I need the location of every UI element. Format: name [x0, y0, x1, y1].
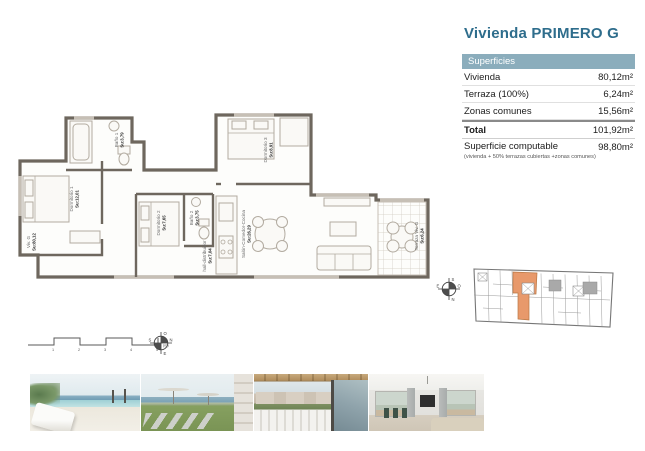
svg-text:Su:80,12: Su:80,12 — [32, 233, 37, 251]
surfaces-table-header: Superficies — [462, 54, 635, 69]
table-row-computable: Superficie computable (vivienda + 50% te… — [462, 139, 635, 162]
svg-text:N: N — [170, 338, 173, 343]
svg-text:Salón-Comedor-Cocina: Salón-Comedor-Cocina — [241, 210, 246, 258]
svg-text:Dormitorio 1: Dormitorio 1 — [69, 186, 74, 211]
svg-text:N: N — [452, 297, 455, 302]
curtain-shape — [439, 388, 447, 418]
key-plan-drawing — [463, 242, 638, 334]
svg-text:2: 2 — [78, 348, 80, 352]
total-label: Total — [464, 125, 486, 136]
loungers-shape — [143, 413, 216, 429]
photo-pool-sea-view — [30, 374, 140, 431]
row-label: Vivienda — [464, 72, 500, 83]
table-row-vivienda: Vivienda 80,12m² — [462, 69, 635, 86]
svg-text:Su:26,29: Su:26,29 — [247, 225, 252, 243]
building-outline — [474, 269, 613, 327]
svg-text:Dormitorio 3: Dormitorio 3 — [263, 137, 268, 162]
row-label: Terraza (100%) — [464, 89, 529, 100]
svg-text:O: O — [458, 284, 462, 289]
building-shape — [234, 374, 253, 431]
wardrobe-dorm1 — [70, 231, 100, 243]
computable-label-block: Superficie computable (vivienda + 50% te… — [464, 142, 596, 160]
svg-text:Viv. G: Viv. G — [26, 236, 31, 249]
svg-text:Baño 2: Baño 2 — [189, 210, 194, 225]
page-title: Vivienda PRIMERO G — [464, 25, 619, 42]
cityscape-shape — [256, 392, 331, 403]
photo-balcony-view — [254, 374, 368, 431]
sink-bath2 — [192, 198, 201, 207]
railing-shape — [254, 410, 332, 431]
svg-text:4: 4 — [130, 348, 132, 352]
wardrobe-dorm3 — [280, 118, 308, 146]
svg-text:Su:8,91: Su:8,91 — [269, 142, 274, 158]
lounger-shape — [31, 402, 75, 431]
svg-text:Su:6,24: Su:6,24 — [420, 228, 425, 244]
sink-bath1 — [109, 121, 119, 131]
svg-text:S: S — [452, 277, 455, 282]
room-label-bano2: Baño 2 Su:3,75 — [189, 210, 200, 226]
umbrella-stem-shape — [208, 396, 209, 405]
brochure-page: Vivienda PRIMERO G Superficies Vivienda … — [0, 0, 645, 451]
svg-text:hall-distribuidor: hall-distribuidor — [202, 240, 207, 272]
floor-plan-drawing: Dormitorio 1 Su:12,01 Baño 1 Su:3,79 Dor… — [14, 106, 436, 284]
row-value: 80,12m² — [598, 72, 633, 83]
kitchen-sink — [219, 203, 233, 221]
svg-text:S: S — [149, 338, 152, 343]
sofa-shape — [431, 418, 484, 431]
photo-interior-living-room — [369, 374, 484, 431]
tv-unit — [324, 198, 370, 206]
computable-note: (vivienda + 50% terrazas cubiertas +zona… — [464, 154, 596, 160]
dining-chairs-shape — [384, 408, 410, 418]
svg-text:Dormitorio 2: Dormitorio 2 — [156, 210, 161, 235]
key-plan — [463, 242, 638, 334]
svg-text:Su:7,65: Su:7,65 — [162, 215, 167, 231]
computable-label: Superficie computable — [464, 141, 558, 152]
tv-shape — [420, 395, 435, 407]
compass-rose-icon: O E S N — [148, 330, 174, 356]
svg-text:O: O — [164, 331, 168, 336]
sofa — [317, 246, 371, 270]
pendant-lamp-shape — [427, 376, 428, 384]
table-row-terraza: Terraza (100%) 6,24m² — [462, 86, 635, 103]
lamp-post-shape — [124, 389, 126, 403]
svg-text:Su:3,75: Su:3,75 — [195, 210, 200, 226]
floor-plan: Dormitorio 1 Su:12,01 Baño 1 Su:3,79 Dor… — [14, 106, 436, 284]
table-row-zonas-comunes: Zonas comunes 15,56m² — [462, 103, 635, 120]
svg-text:E: E — [164, 351, 167, 356]
plants-shape — [30, 383, 60, 406]
svg-text:E: E — [437, 284, 440, 289]
svg-text:Terraza Viv. G: Terraza Viv. G — [414, 221, 419, 250]
svg-text:Su:3,79: Su:3,79 — [120, 132, 125, 148]
svg-text:Su:12,01: Su:12,01 — [75, 190, 80, 208]
glass-door-shape — [331, 380, 368, 431]
svg-text:Su:7,04: Su:7,04 — [208, 248, 213, 264]
computable-value: 98,80m² — [598, 142, 633, 153]
table-row-total: Total 101,92m² — [462, 120, 635, 139]
photo-solarium-loungers — [141, 374, 253, 431]
lamp-post-shape — [112, 390, 114, 403]
compass-rose-icon: S N E O — [436, 276, 462, 302]
surfaces-table: Superficies Vivienda 80,12m² Terraza (10… — [462, 54, 635, 162]
total-value: 101,92m² — [593, 125, 633, 136]
room-label-bano1: Baño 1 Su:3,79 — [114, 132, 125, 148]
kitchen-hob — [219, 236, 233, 258]
row-label: Zonas comunes — [464, 106, 532, 117]
window-shape — [446, 390, 476, 416]
row-value: 15,56m² — [598, 106, 633, 117]
coffee-table — [330, 222, 356, 236]
umbrella-stem-shape — [173, 391, 174, 404]
svg-text:Baño 1: Baño 1 — [114, 132, 119, 147]
svg-text:1: 1 — [52, 348, 54, 352]
row-value: 6,24m² — [603, 89, 633, 100]
toilet-bath2 — [199, 219, 209, 226]
svg-text:3: 3 — [104, 348, 106, 352]
